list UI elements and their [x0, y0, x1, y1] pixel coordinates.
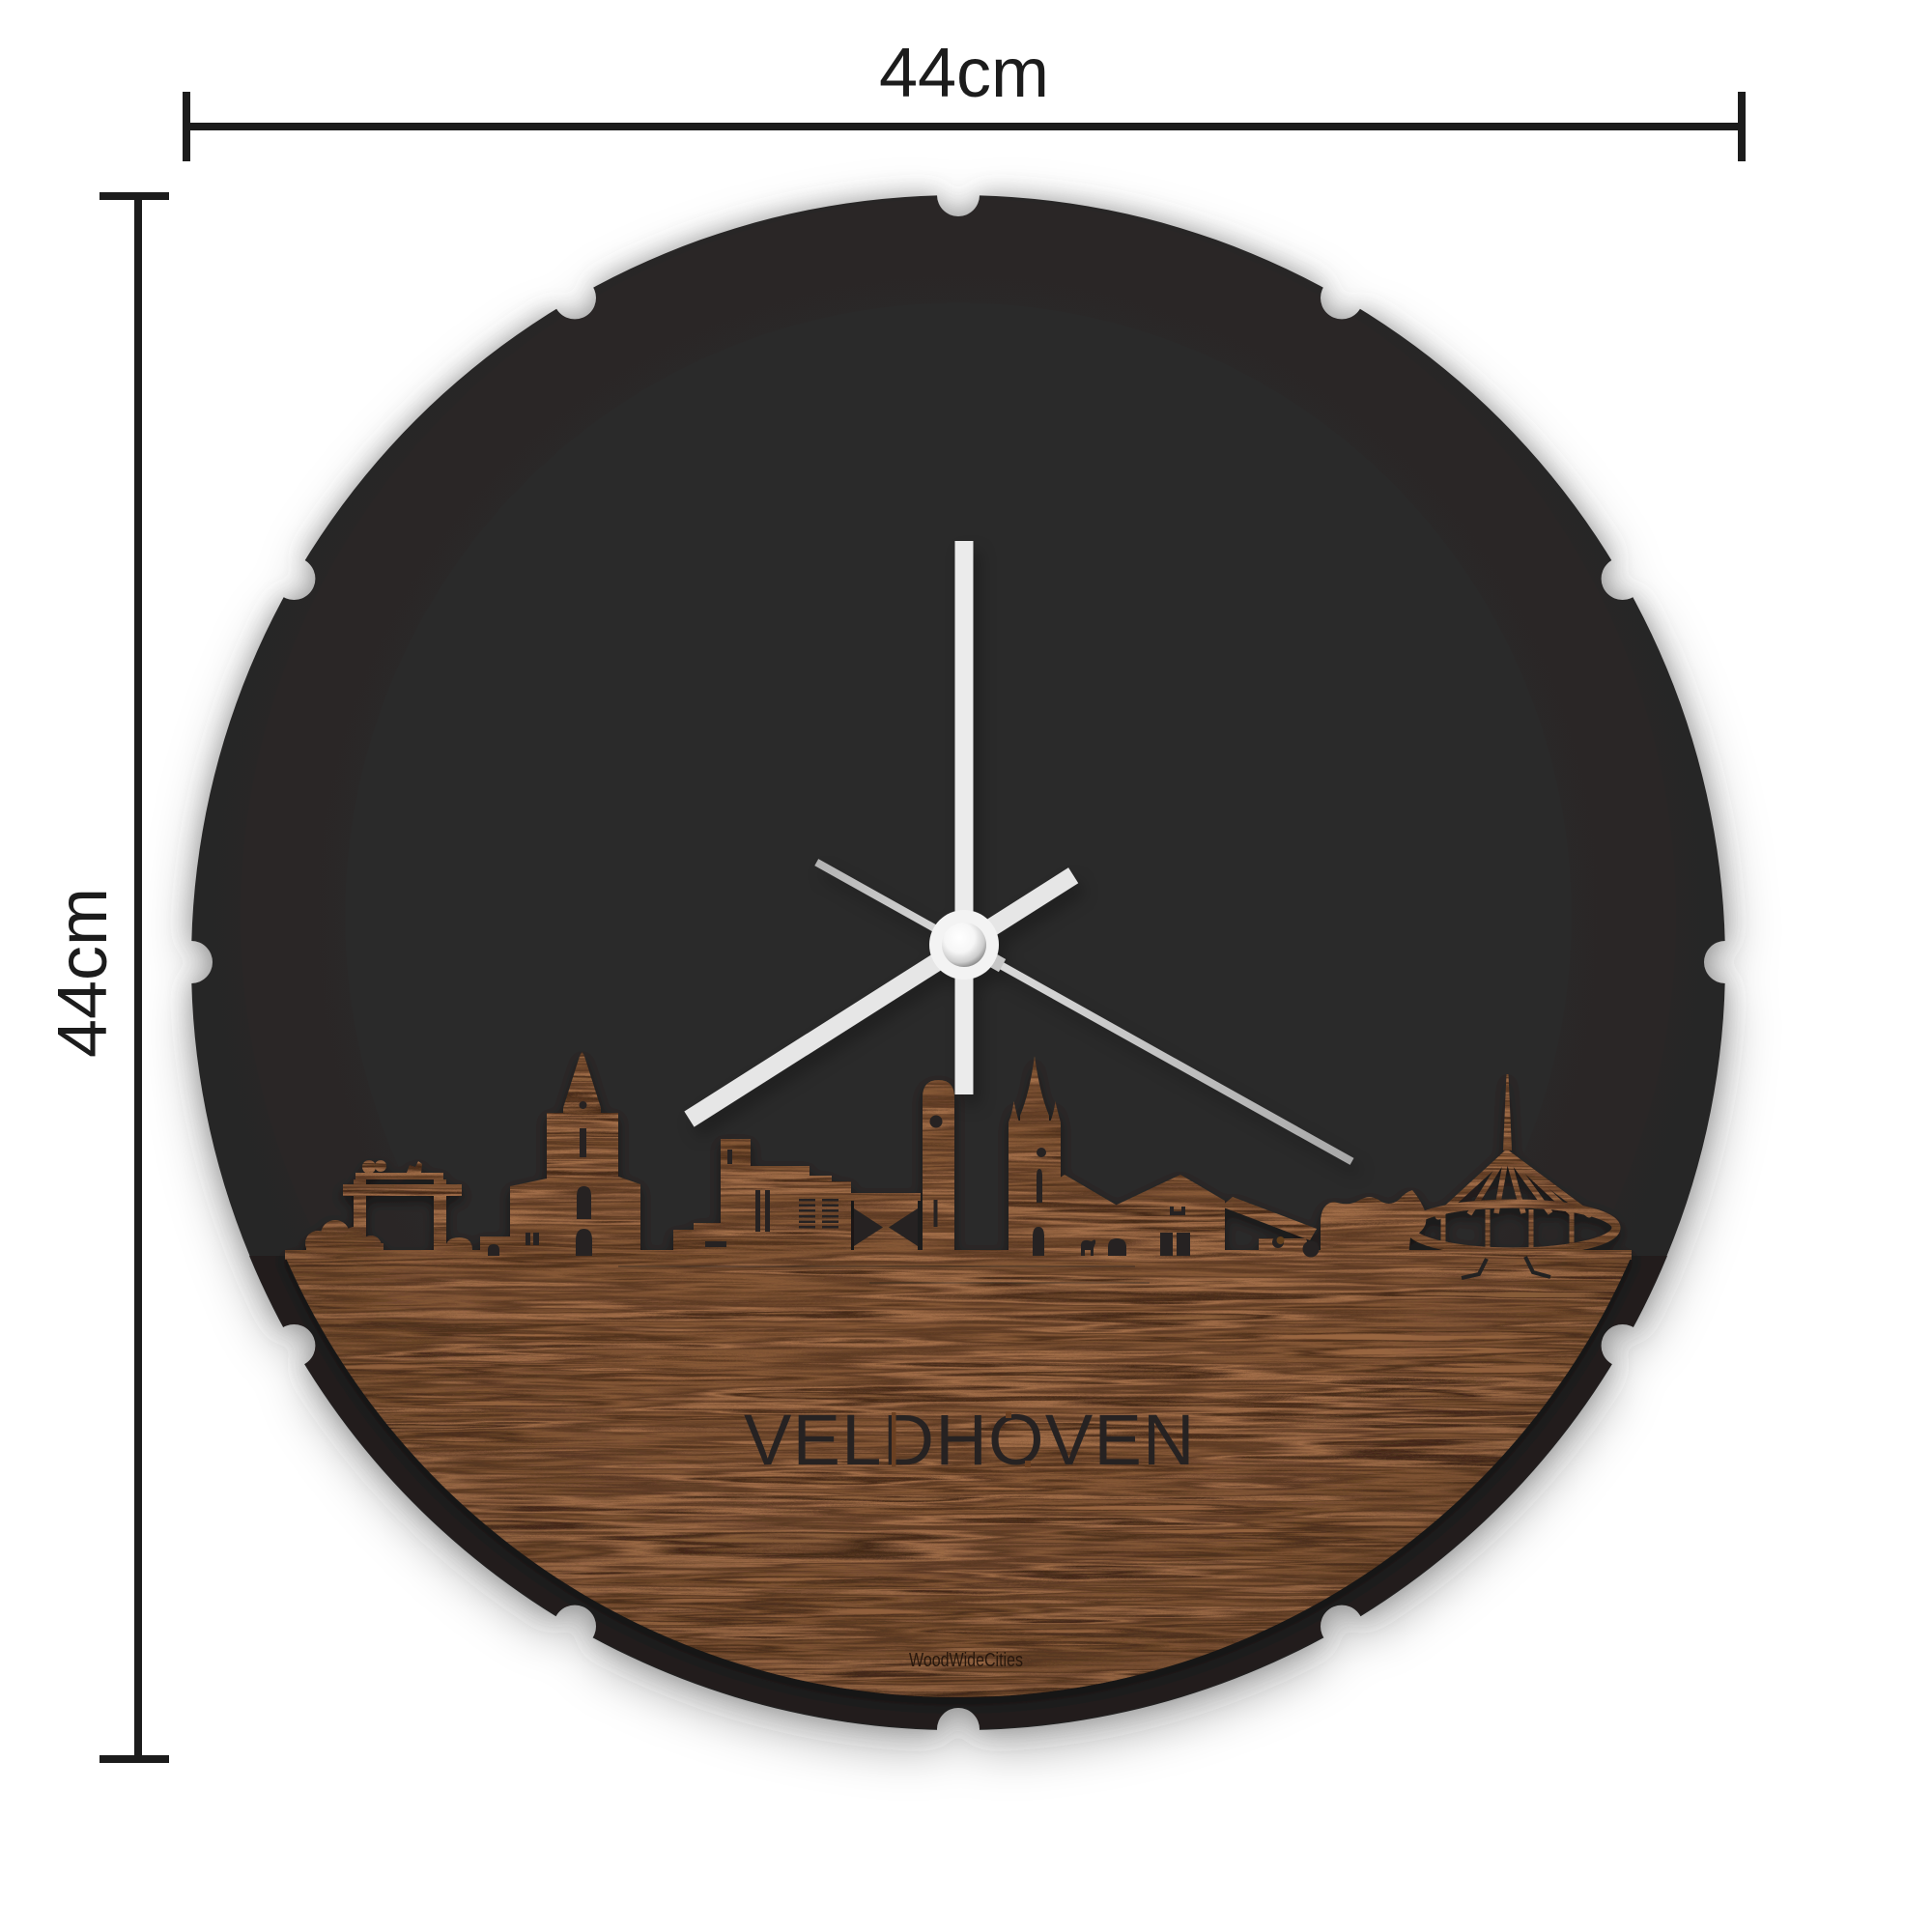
- svg-text:44cm: 44cm: [44, 888, 122, 1058]
- svg-text:44cm: 44cm: [879, 35, 1049, 112]
